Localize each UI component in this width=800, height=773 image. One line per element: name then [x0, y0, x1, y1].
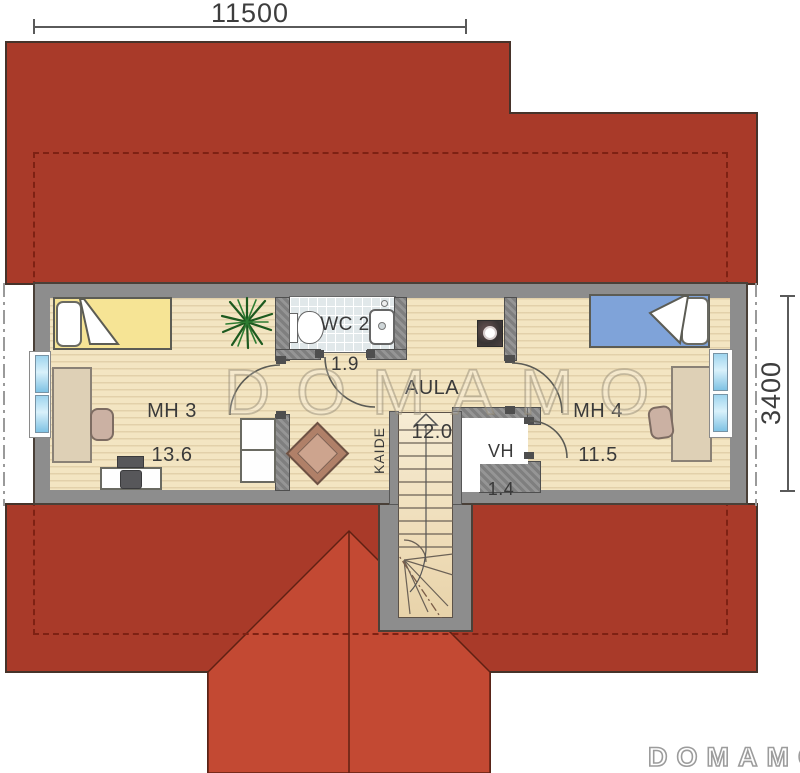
room-name-wc2: WC 2 — [300, 315, 390, 335]
floor-plan-canvas: 11500 3400 — [0, 0, 800, 773]
room-area-mh3: 13.6 — [117, 444, 227, 466]
room-name-mh3: MH 3 — [117, 400, 227, 422]
room-label-vh: VH 1.4 — [476, 423, 526, 518]
plant-icon — [222, 298, 272, 348]
room-area-vh: 1.4 — [476, 480, 526, 499]
room-label-mh3: MH 3 13.6 — [117, 378, 227, 488]
room-name-vh: VH — [476, 442, 526, 461]
watermark-text: DOMAMO — [224, 355, 675, 429]
room-area-mh4: 11.5 — [543, 444, 653, 466]
brand-logo-text: DOMAMO — [648, 742, 800, 773]
